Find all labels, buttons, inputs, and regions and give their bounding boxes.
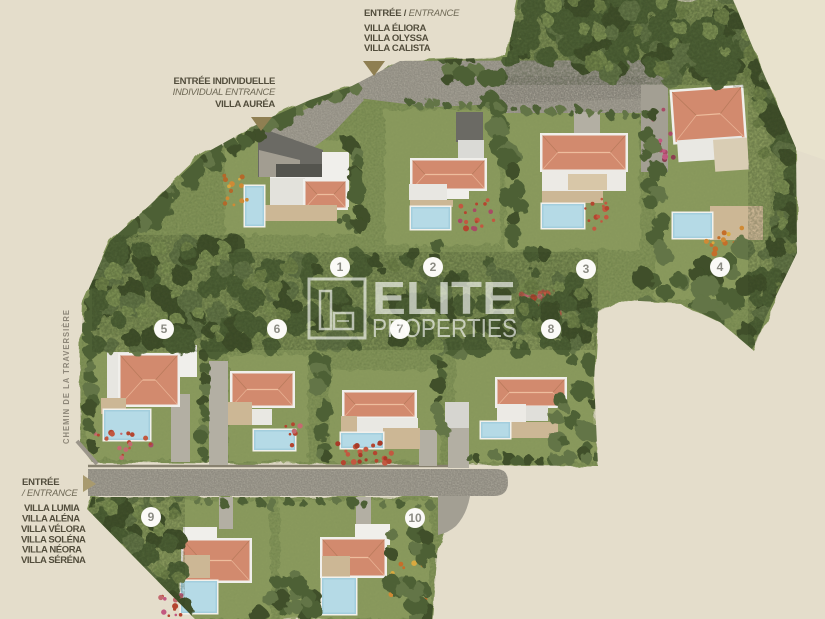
svg-text:VILLA LUMIA: VILLA LUMIA [24, 503, 80, 514]
svg-text:5: 5 [161, 322, 168, 336]
svg-text:CHEMIN DE LA TRAVERSIÈRE: CHEMIN DE LA TRAVERSIÈRE [62, 309, 71, 444]
svg-text:6: 6 [274, 322, 281, 336]
svg-text:VILLA VÉLORA: VILLA VÉLORA [21, 524, 86, 535]
svg-text:10: 10 [408, 511, 422, 525]
svg-text:VILLA CALISTA: VILLA CALISTA [364, 43, 431, 54]
svg-text:9: 9 [148, 510, 155, 524]
svg-text:1: 1 [337, 260, 344, 274]
svg-text:8: 8 [548, 322, 555, 336]
svg-text:VILLA NÉORA: VILLA NÉORA [22, 545, 82, 556]
svg-text:ENTRÉE INDIVIDUELLE: ENTRÉE INDIVIDUELLE [174, 76, 275, 87]
svg-text:VILLA AURÉA: VILLA AURÉA [215, 99, 275, 110]
svg-text:VILLA ALÉNA: VILLA ALÉNA [22, 514, 80, 525]
svg-text:VILLA SÉRÉNA: VILLA SÉRÉNA [21, 555, 86, 566]
svg-text:/ ENTRANCE: / ENTRANCE [21, 488, 78, 499]
svg-text:4: 4 [717, 260, 724, 274]
svg-text:ENTRÉE: ENTRÉE [22, 477, 59, 488]
svg-text:3: 3 [583, 262, 590, 276]
svg-text:ENTRÉE / ENTRANCE: ENTRÉE / ENTRANCE [364, 8, 460, 19]
svg-text:PROPERTIES: PROPERTIES [372, 313, 517, 343]
svg-text:INDIVIDUAL ENTRANCE: INDIVIDUAL ENTRANCE [173, 87, 276, 98]
